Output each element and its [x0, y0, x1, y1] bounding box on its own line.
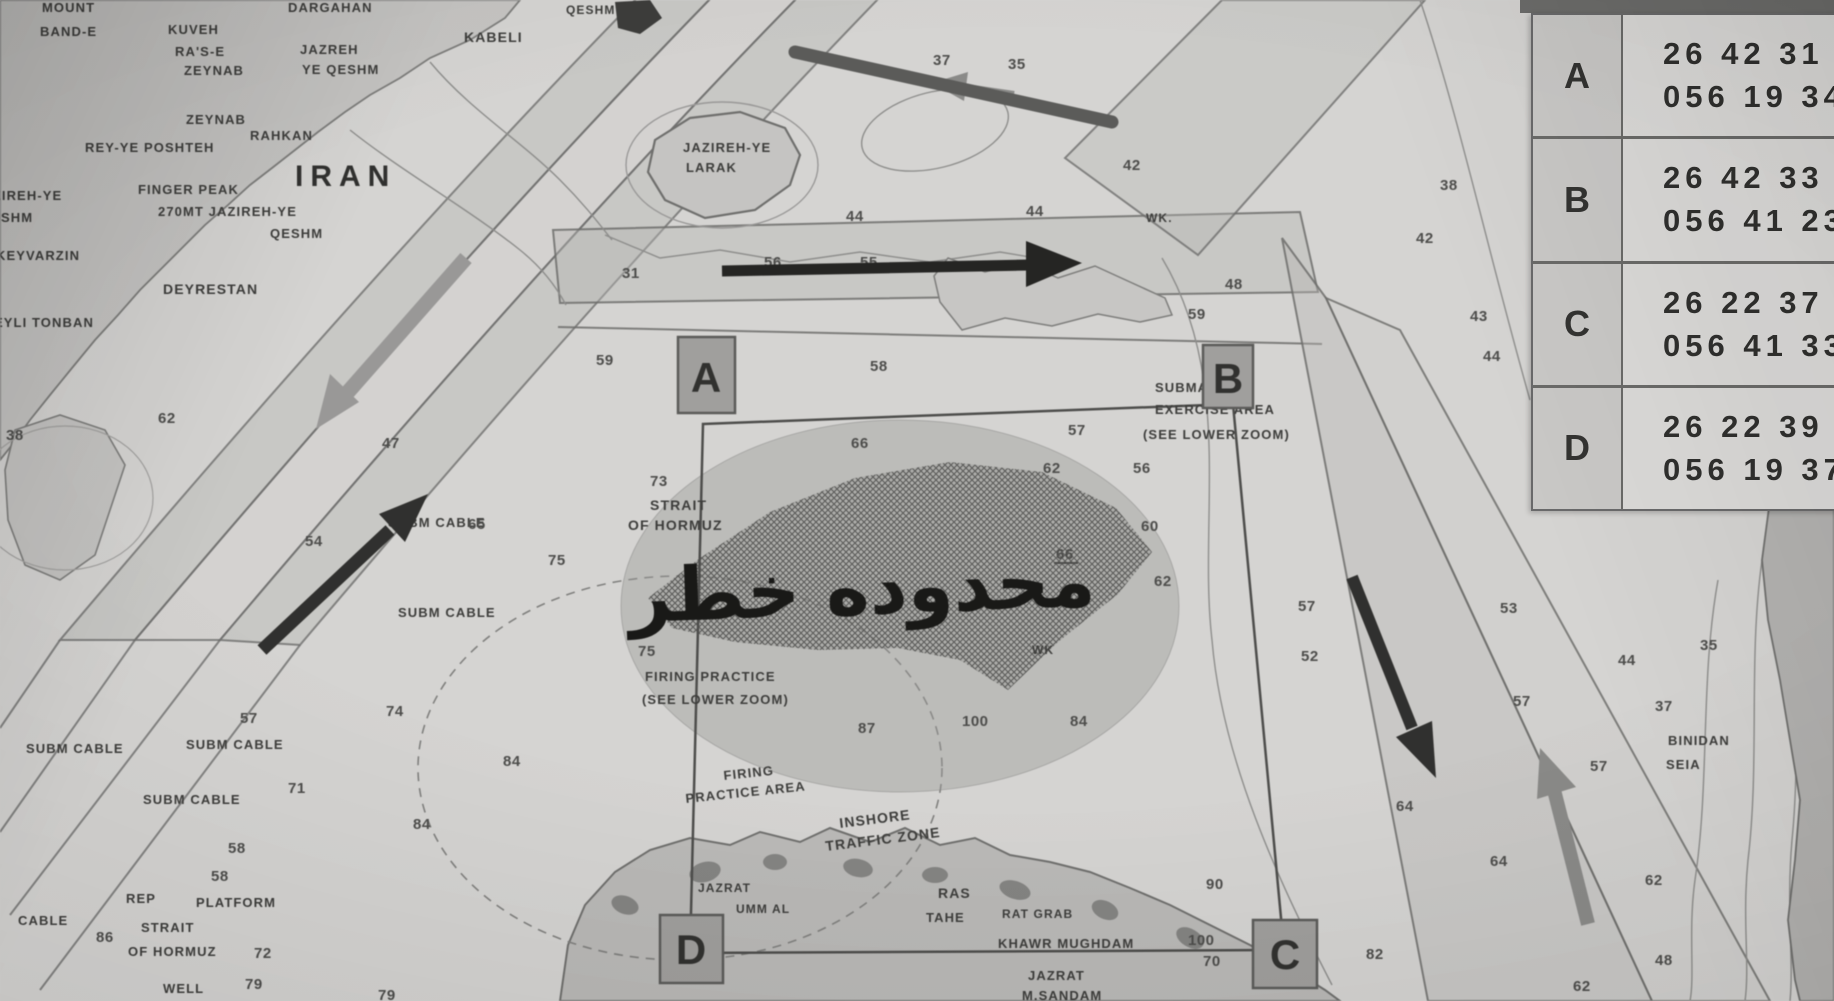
latitude: 26 42 33 — [1663, 160, 1834, 196]
place-label: FIRING PRACTICE — [645, 669, 776, 684]
depth-sounding: 59 — [1188, 306, 1206, 323]
depth-sounding: 62 — [1645, 872, 1663, 889]
place-label: WK. — [1146, 211, 1173, 225]
place-label: QESHM — [0, 210, 33, 225]
place-label: SUBM CABLE — [186, 737, 284, 752]
depth-sounding: 57 — [1590, 758, 1608, 775]
point-letter: D — [1533, 388, 1623, 509]
depth-sounding: 52 — [1301, 648, 1319, 665]
depth-sounding: 38 — [1440, 177, 1458, 194]
svg-text:D: D — [676, 926, 706, 973]
depth-sounding: 44 — [1483, 348, 1501, 365]
place-label: M.SANDAM — [1022, 988, 1102, 1001]
coordinate-table: A 26 42 31 056 19 34 B 26 42 33 056 41 2… — [1531, 13, 1834, 511]
depth-sounding: 90 — [1206, 876, 1224, 893]
depth-sounding: 60 — [1141, 518, 1159, 535]
point-letter: B — [1533, 139, 1623, 260]
place-label: RAHKAN — [250, 128, 313, 143]
depth-sounding: 44 — [1026, 203, 1044, 220]
depth-sounding: 72 — [254, 945, 272, 962]
depth-sounding: 42 — [1123, 157, 1141, 174]
depth-sounding: 58 — [211, 868, 229, 885]
place-label: KABELI — [464, 29, 523, 45]
place-label: SUBM CABLE — [398, 605, 496, 620]
depth-sounding: 57 — [1513, 693, 1531, 710]
longitude: 056 19 34 — [1663, 79, 1834, 115]
depth-sounding: 71 — [288, 780, 306, 797]
place-label: (SEE LOWER ZOOM) — [642, 692, 789, 707]
depth-sounding: 37 — [1655, 698, 1673, 715]
depth-sounding: 65 — [468, 516, 486, 533]
depth-sounding: 48 — [1655, 952, 1673, 969]
place-label: EYLI TONBAN — [0, 315, 94, 330]
corner-marker-a: A — [678, 337, 735, 413]
place-label: IRAN — [295, 160, 396, 193]
depth-sounding: 44 — [1618, 652, 1636, 669]
place-label: OF HORMUZ — [128, 944, 217, 959]
longitude: 056 41 33 — [1663, 328, 1834, 364]
depth-sounding: 82 — [1366, 946, 1384, 963]
point-letter: C — [1533, 264, 1623, 385]
place-label: MOUNT — [42, 0, 95, 15]
table-row-a: A 26 42 31 056 19 34 — [1533, 15, 1834, 139]
place-label: OF HORMUZ — [628, 517, 723, 533]
place-label: JAZIREH-YE — [683, 140, 771, 155]
table-row-c: C 26 22 37 056 41 33 — [1533, 264, 1834, 388]
depth-sounding: 58 — [228, 840, 246, 857]
point-coordinates: 26 22 37 056 41 33 — [1623, 264, 1834, 385]
depth-sounding: 53 — [1500, 600, 1518, 617]
depth-sounding: 70 — [1203, 953, 1221, 970]
depth-sounding: 66 — [1056, 546, 1074, 563]
depth-sounding: 86 — [96, 929, 114, 946]
danger-area-label: محدوده خطر — [623, 538, 1097, 641]
point-coordinates: 26 42 33 056 41 23 — [1623, 139, 1834, 260]
place-label: JAZREH — [300, 42, 359, 57]
depth-sounding: 84 — [413, 816, 431, 833]
place-label: DEYRESTAN — [163, 281, 258, 297]
point-coordinates: 26 42 31 056 19 34 — [1623, 15, 1834, 136]
depth-sounding: 66 — [851, 435, 869, 452]
svg-text:C: C — [1270, 931, 1300, 978]
chart-photo: محدوده خطر MOUNTBAND-EDARGAHANKUVEHRA'S-… — [0, 0, 1834, 1001]
place-label: TAHE — [926, 910, 965, 925]
place-label: PLATFORM — [196, 895, 276, 910]
table-row-b: B 26 42 33 056 41 23 — [1533, 139, 1834, 263]
place-label: RA'S-E — [175, 44, 225, 59]
depth-sounding: 57 — [240, 710, 258, 727]
place-label: STRAIT — [650, 497, 707, 513]
place-label: DARGAHAN — [288, 0, 373, 15]
depth-sounding: 43 — [1470, 308, 1488, 325]
depth-sounding: 73 — [650, 473, 668, 490]
place-label: LARAK — [686, 160, 737, 175]
depth-sounding: 100 — [1188, 932, 1215, 949]
depth-sounding: 79 — [378, 987, 396, 1001]
depth-sounding: 57 — [1068, 422, 1086, 439]
depth-sounding: 48 — [1225, 276, 1243, 293]
place-label: WELL — [163, 981, 204, 996]
depth-sounding: 75 — [548, 552, 566, 569]
place-label: SUBM CABLE — [143, 792, 241, 807]
longitude: 056 41 23 — [1663, 203, 1834, 239]
place-label: QESHM — [566, 3, 616, 17]
depth-sounding: 75 — [638, 643, 656, 660]
place-label: YE QESHM — [302, 62, 379, 77]
place-label: BAND-E — [40, 24, 97, 39]
corner-marker-b: B — [1203, 345, 1253, 408]
place-label: ZEYNAB — [186, 112, 246, 127]
place-label: BINIDAN — [1668, 733, 1730, 748]
depth-sounding: 31 — [622, 265, 640, 282]
depth-sounding: 100 — [962, 713, 989, 730]
depth-sounding: 79 — [245, 976, 263, 993]
depth-sounding: 62 — [1573, 978, 1591, 995]
depth-sounding: 47 — [382, 435, 400, 452]
corner-marker-c: C — [1253, 920, 1317, 988]
point-coordinates: 26 22 39 056 19 37 — [1623, 388, 1834, 509]
place-label: ZEYNAB — [184, 63, 244, 78]
place-label: STRAIT — [141, 920, 195, 935]
place-label: JAZRAT — [1028, 968, 1085, 983]
place-label: SEIA — [1666, 757, 1701, 772]
depth-sounding: 84 — [503, 753, 521, 770]
point-letter: A — [1533, 15, 1623, 136]
depth-sounding: 56 — [1133, 460, 1151, 477]
latitude: 26 42 31 — [1663, 36, 1834, 72]
depth-sounding: 64 — [1490, 853, 1508, 870]
table-row-d: D 26 22 39 056 19 37 — [1533, 388, 1834, 509]
place-label: QESHM — [270, 226, 323, 241]
latitude: 26 22 37 — [1663, 285, 1834, 321]
longitude: 056 19 37 — [1663, 452, 1834, 488]
depth-sounding: 35 — [1700, 637, 1718, 654]
place-label: REY-YE POSHTEH — [85, 140, 215, 155]
depth-sounding: 54 — [305, 533, 323, 550]
svg-text:A: A — [691, 354, 721, 401]
place-label: KEYVARZIN — [0, 248, 80, 263]
place-label: JAZIREH-YE — [0, 188, 62, 203]
depth-sounding: 57 — [1298, 598, 1316, 615]
svg-text:B: B — [1213, 355, 1243, 402]
depth-sounding: 44 — [846, 208, 864, 225]
place-label: RAT GRAB — [1002, 907, 1073, 921]
place-label: FINGER PEAK — [138, 182, 239, 197]
depth-sounding: 62 — [1154, 573, 1172, 590]
place-label: WK — [1032, 643, 1054, 657]
place-label: KUVEH — [168, 22, 219, 37]
depth-sounding: 64 — [1396, 798, 1414, 815]
place-label: CABLE — [18, 913, 68, 928]
place-label: RAS — [938, 885, 971, 901]
place-label: SUBM CABLE — [26, 741, 124, 756]
depth-sounding: 59 — [596, 352, 614, 369]
depth-sounding: 62 — [1043, 460, 1061, 477]
depth-sounding: 35 — [1008, 56, 1026, 73]
table-header-strip — [1520, 0, 1834, 13]
depth-sounding: 74 — [386, 703, 404, 720]
latitude: 26 22 39 — [1663, 409, 1834, 445]
depth-sounding: 84 — [1070, 713, 1088, 730]
place-label: REP — [126, 891, 156, 906]
place-label: UMM AL — [736, 902, 790, 916]
depth-sounding: 58 — [870, 358, 888, 375]
place-label: KHAWR MUGHDAM — [998, 936, 1134, 951]
depth-sounding: 87 — [858, 720, 876, 737]
corner-marker-d: D — [660, 915, 723, 983]
place-label: JAZRAT — [698, 881, 751, 895]
place-label: (SEE LOWER ZOOM) — [1143, 427, 1290, 442]
place-label: 270MT JAZIREH-YE — [158, 204, 297, 219]
depth-sounding: 62 — [158, 410, 176, 427]
depth-sounding: 37 — [933, 52, 951, 69]
depth-sounding: 38 — [6, 427, 24, 444]
depth-sounding: 42 — [1416, 230, 1434, 247]
